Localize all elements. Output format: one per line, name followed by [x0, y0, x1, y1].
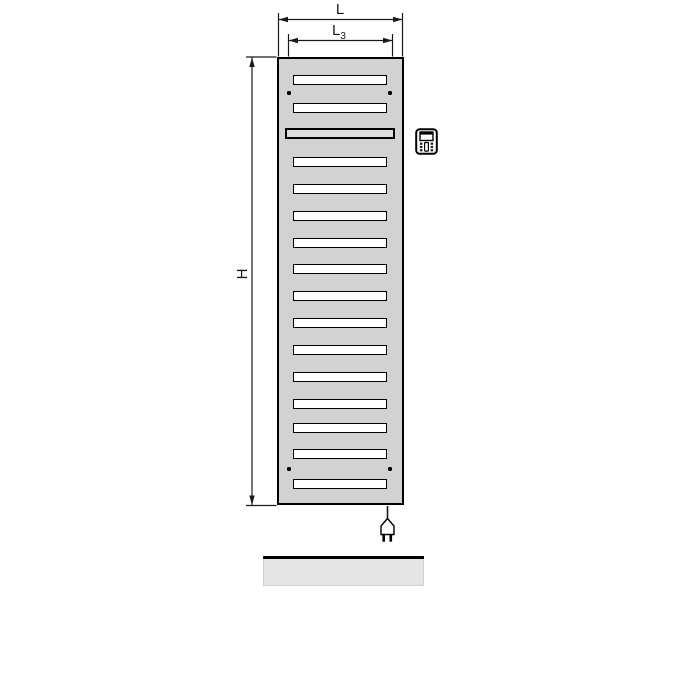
radiator-slot	[293, 372, 387, 382]
label-element-width-L3: L3	[326, 23, 352, 42]
radiator-slot	[293, 157, 387, 167]
arrowhead-bottom	[249, 496, 254, 506]
arrowhead-top	[249, 58, 254, 68]
plug-prong	[382, 535, 385, 542]
arrowhead-left	[279, 17, 289, 22]
control-center-button	[425, 143, 429, 152]
radiator-slot	[293, 238, 387, 248]
control-side-button	[420, 143, 423, 145]
plug-prong	[390, 535, 393, 542]
control-side-button	[431, 149, 434, 151]
control-side-button	[431, 146, 434, 148]
mounting-dot	[388, 467, 391, 470]
radiator-slot	[293, 345, 387, 355]
label-L3-subscript: 3	[340, 31, 346, 42]
mounting-dot	[287, 91, 290, 94]
arrowhead-right	[393, 17, 403, 22]
label-width-L: L	[330, 2, 350, 17]
heating-element-slot	[285, 128, 395, 139]
radiator-slot	[293, 449, 387, 459]
radiator-slot	[293, 184, 387, 194]
control-unit-icon	[415, 128, 438, 155]
label-height-H: H	[235, 263, 251, 285]
arrowhead-right	[383, 38, 393, 43]
radiator-slot	[293, 211, 387, 221]
radiator-slot	[293, 264, 387, 274]
radiator-slot	[293, 479, 387, 489]
radiator-slot	[293, 423, 387, 433]
mounting-dot	[287, 467, 290, 470]
radiator-slot	[293, 399, 387, 409]
floor-slab	[263, 559, 424, 586]
radiator-slot	[293, 75, 387, 85]
control-side-button	[420, 149, 423, 151]
control-side-button	[420, 146, 423, 148]
radiator-body	[277, 57, 404, 505]
arrowhead-left	[289, 38, 299, 43]
mounting-dot	[388, 91, 391, 94]
control-display-header	[420, 132, 433, 135]
control-side-button	[431, 143, 434, 145]
radiator-slot	[293, 291, 387, 301]
radiator-slot	[293, 318, 387, 328]
diagram-stage: L L3 H	[0, 0, 700, 700]
plug-body	[381, 519, 394, 535]
power-plug-icon	[381, 519, 394, 542]
radiator-slot	[293, 103, 387, 113]
